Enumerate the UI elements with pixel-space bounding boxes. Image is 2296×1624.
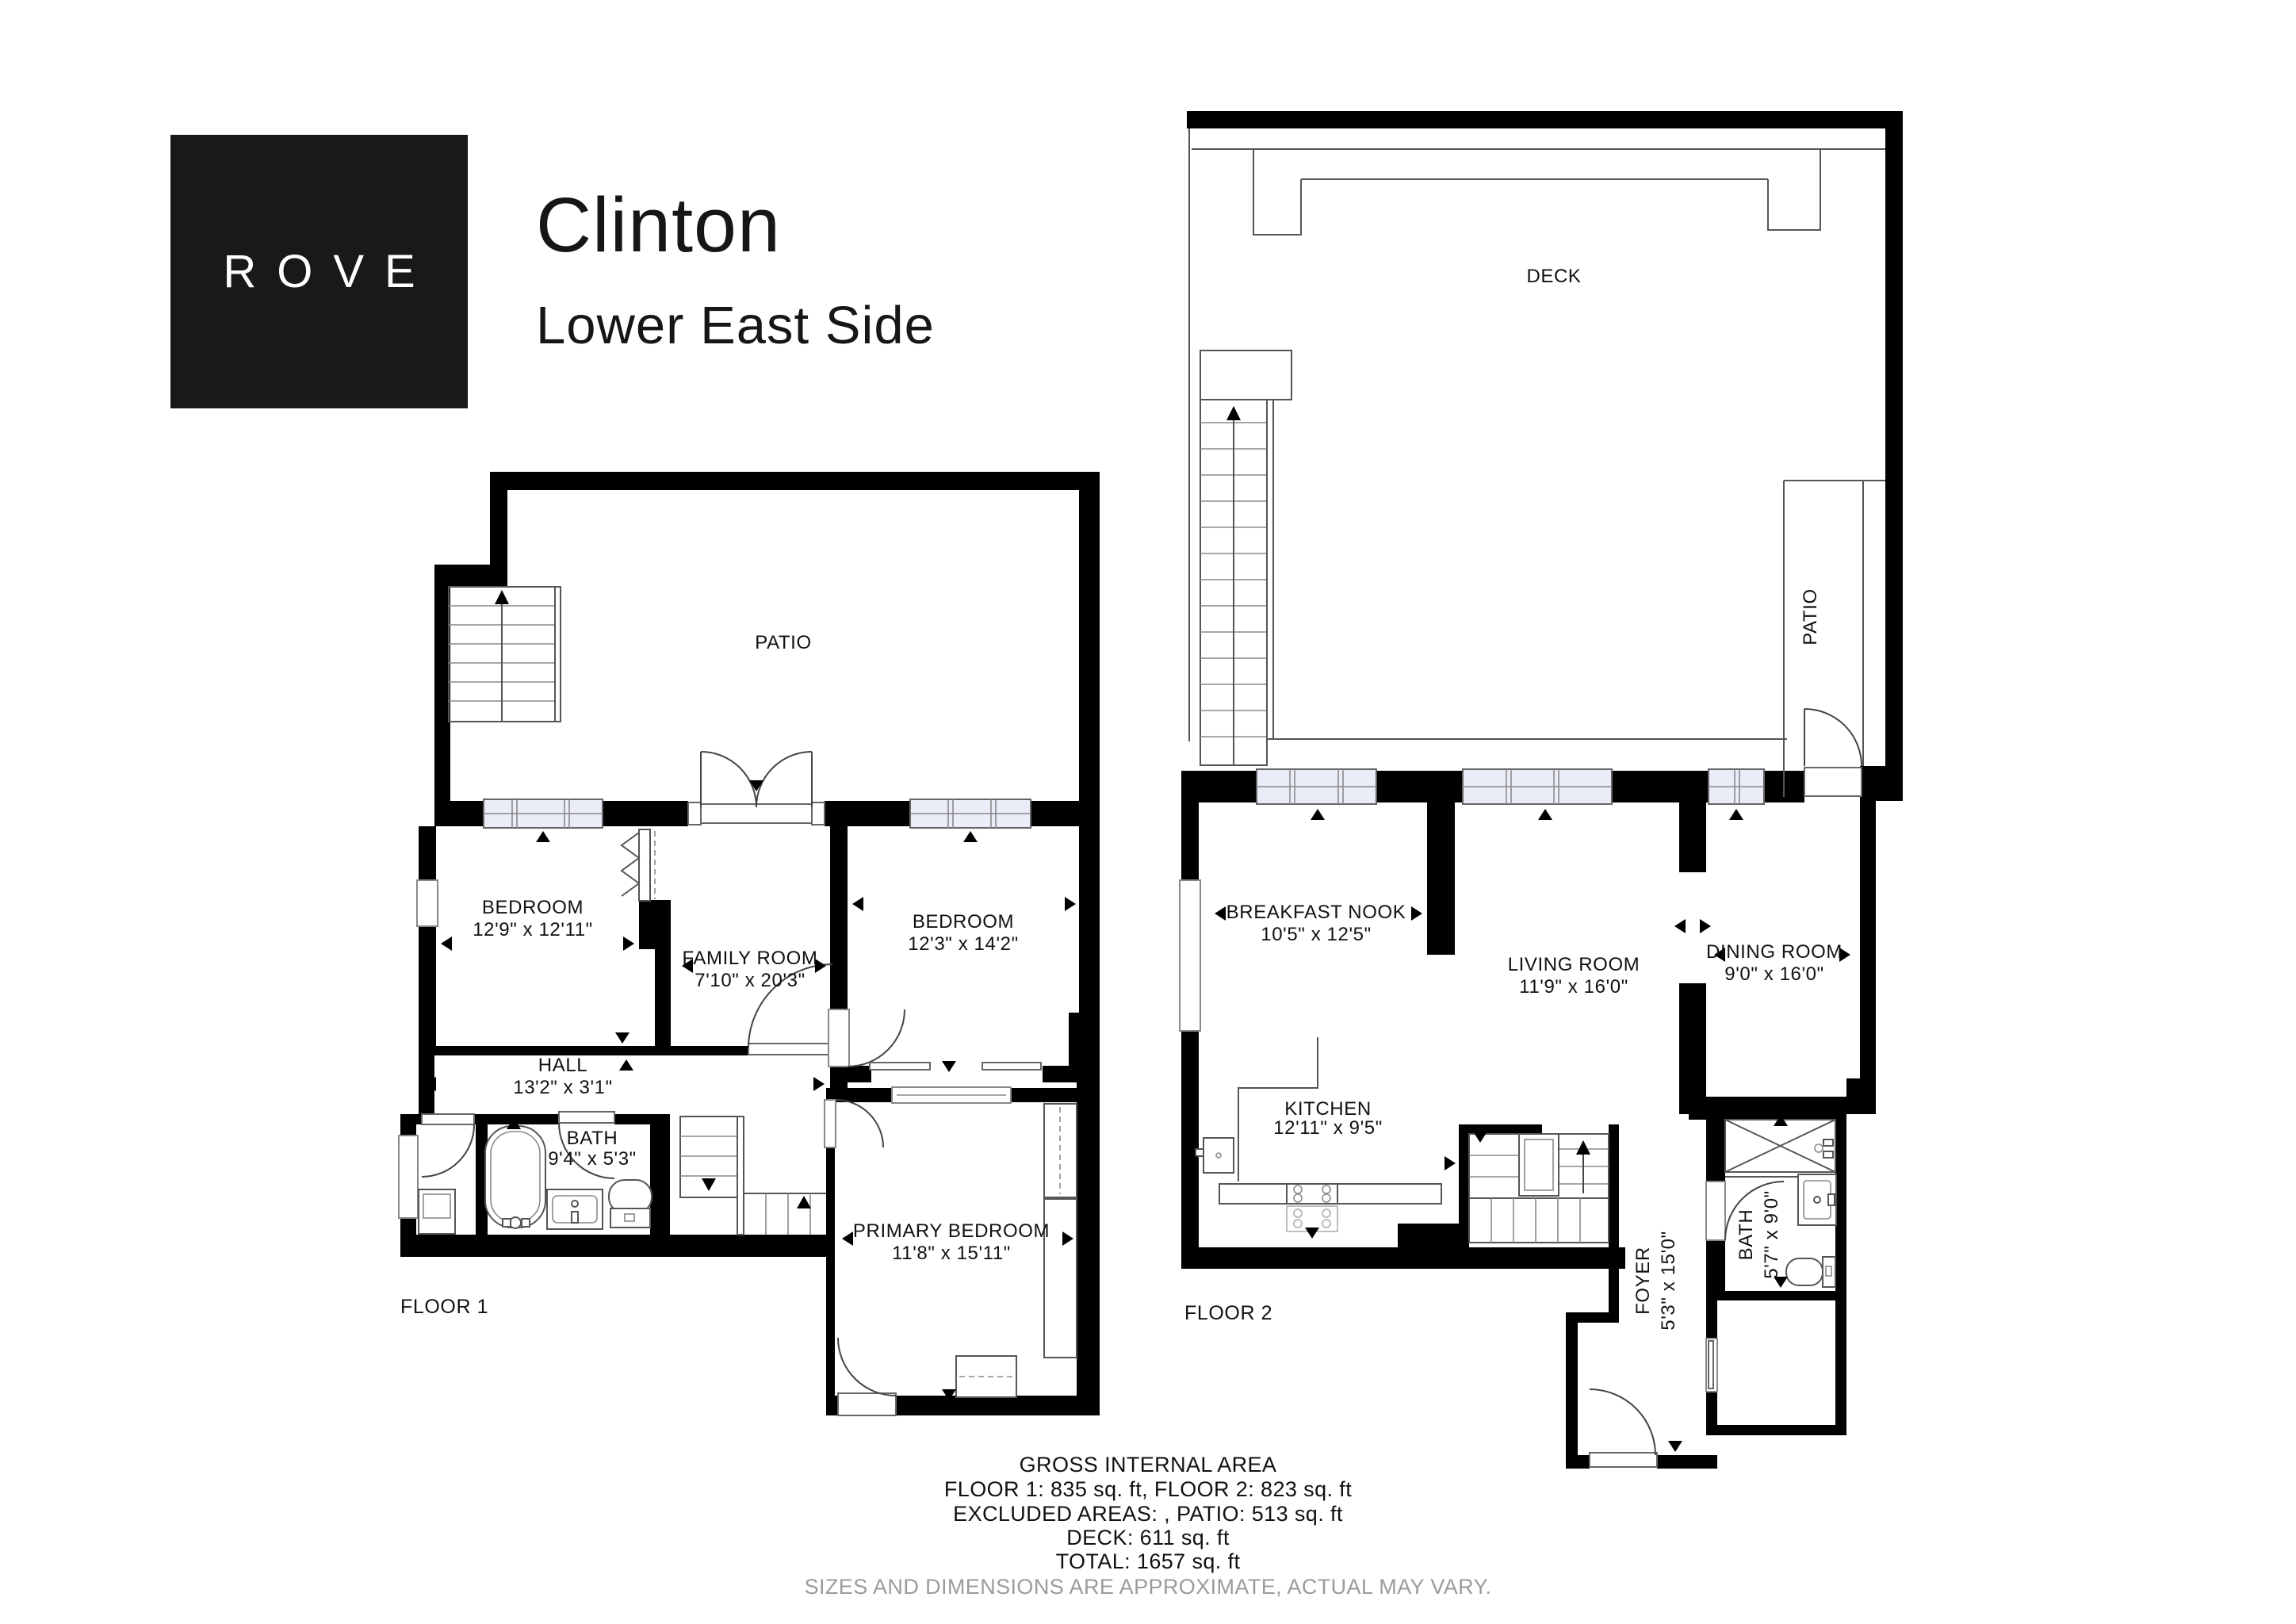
floor2-windows	[1180, 769, 1764, 1031]
floor1-plan: PATIO BEDROOM 12'9" x 12'11" FAMILY ROOM…	[399, 472, 1100, 1415]
room-dims-kitchen: 12'11" x 9'5"	[1273, 1117, 1383, 1139]
room-label-family: FAMILY ROOM	[682, 948, 817, 969]
room-label-bedroom2: BEDROOM	[913, 911, 1014, 933]
room-label-patio-f2: PATIO	[1800, 588, 1821, 645]
room-label-kitchen: KITCHEN	[1284, 1098, 1372, 1120]
down-arrow-icon	[1473, 1132, 1487, 1143]
room-label-deck: DECK	[1526, 266, 1581, 287]
room-dims-bedroom1: 12'9" x 12'11"	[473, 919, 593, 940]
floor2-stairs	[1469, 1132, 1609, 1243]
room-dims-primary: 11'8" x 15'11"	[892, 1243, 1011, 1264]
room-dims-bedroom2: 12'3" x 14'2"	[908, 933, 1018, 955]
floor1-stairs	[680, 1116, 826, 1235]
up-arrow-icon	[495, 590, 509, 604]
up-arrow-icon	[797, 1196, 811, 1208]
room-label-living: LIVING ROOM	[1508, 954, 1640, 975]
room-dims-foyer: 5'3" x 15'0"	[1658, 1231, 1679, 1330]
floor2-deck-stairs	[1200, 350, 1291, 765]
up-arrow-icon	[1226, 406, 1241, 420]
footer-total-area: TOTAL: 1657 sq. ft	[0, 1549, 2296, 1574]
footer-floor-areas: FLOOR 1: 835 sq. ft, FLOOR 2: 823 sq. ft	[0, 1477, 2296, 1502]
floor1-closet-bifold	[622, 829, 655, 901]
down-arrow-icon	[702, 1178, 716, 1191]
room-dims-living: 11'9" x 16'0"	[1519, 976, 1628, 998]
down-arrow-icon	[1305, 1228, 1319, 1239]
room-label-primary: PRIMARY BEDROOM	[853, 1220, 1050, 1242]
floor1-label: FLOOR 1	[400, 1296, 488, 1318]
footer-excluded-areas: EXCLUDED AREAS: , PATIO: 513 sq. ft	[0, 1502, 2296, 1526]
room-label-hall: HALL	[538, 1055, 587, 1076]
room-label-bath-f2: BATH	[1735, 1209, 1757, 1261]
floor2-plan: DECK PATIO BREAKFAST NOOK 10'5" x 12'5" …	[1180, 111, 1903, 1469]
room-dims-nook: 10'5" x 12'5"	[1261, 924, 1371, 945]
footer-disclaimer: SIZES AND DIMENSIONS ARE APPROXIMATE, AC…	[0, 1575, 2296, 1599]
room-label-patio-f1: PATIO	[755, 632, 811, 653]
room-dims-dining: 9'0" x 16'0"	[1724, 963, 1823, 985]
floor1-patio-stairs	[449, 587, 561, 722]
room-dims-bath-f1: 9'4" x 5'3"	[548, 1148, 637, 1170]
room-label-nook: BREAKFAST NOOK	[1226, 902, 1406, 923]
floorplan-drawing: PATIO BEDROOM 12'9" x 12'11" FAMILY ROOM…	[0, 0, 2296, 1624]
room-label-bath-f1: BATH	[567, 1128, 618, 1149]
room-dims-family: 7'10" x 20'3"	[695, 970, 805, 991]
up-arrow-icon	[1576, 1140, 1590, 1155]
room-label-foyer: FOYER	[1632, 1247, 1654, 1315]
floorplan-sheet: ROVE Clinton Lower East Side	[0, 0, 2296, 1624]
room-label-dining: DINING ROOM	[1706, 941, 1843, 963]
room-dims-bath-f2: 5'7" x 9'0"	[1761, 1190, 1782, 1279]
floor2-deck-outline	[1189, 128, 1885, 741]
room-label-bedroom1: BEDROOM	[482, 897, 584, 918]
floor2-label: FLOOR 2	[1184, 1302, 1272, 1324]
footer-deck-area: DECK: 611 sq. ft	[0, 1526, 2296, 1550]
room-dims-hall: 13'2" x 3'1"	[513, 1077, 612, 1098]
footer-area-title: GROSS INTERNAL AREA	[0, 1453, 2296, 1477]
